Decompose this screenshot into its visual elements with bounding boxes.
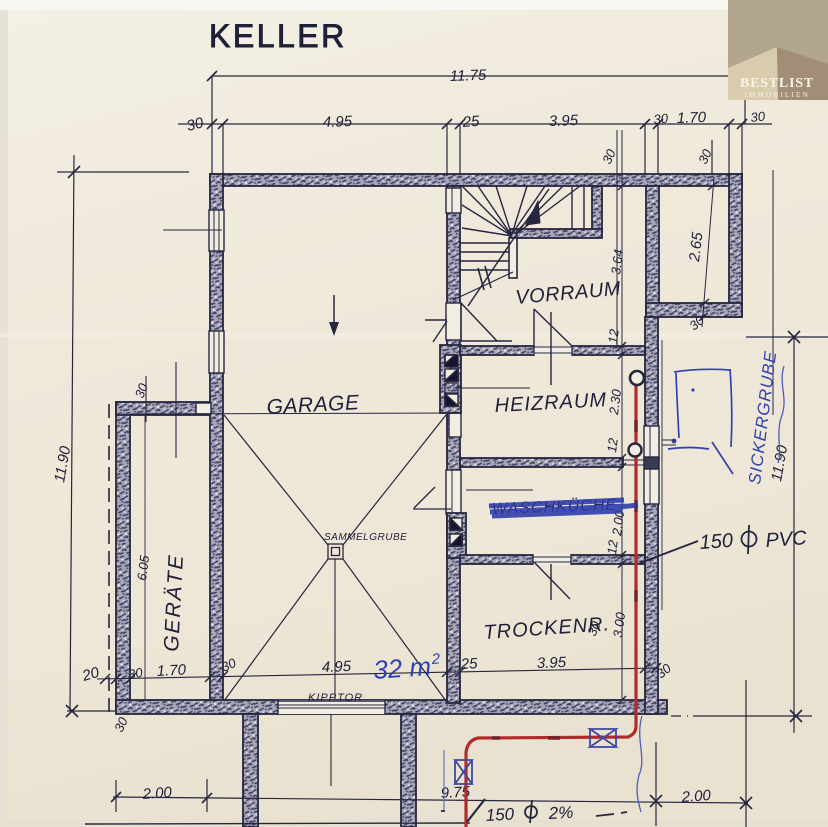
svg-text:32 m: 32 m [372,651,432,685]
svg-text:1.70: 1.70 [677,109,707,127]
svg-text:3.95: 3.95 [549,112,579,130]
svg-text:2: 2 [430,650,441,668]
svg-text:PVC: PVC [765,527,808,552]
svg-text:SAMMELGRUBE: SAMMELGRUBE [324,532,407,543]
svg-text:BESTLIST: BESTLIST [740,76,814,91]
svg-text:IMMOBILIEN: IMMOBILIEN [744,90,810,99]
svg-text:25: 25 [459,655,478,673]
svg-text:GARAGE: GARAGE [266,391,360,419]
svg-text:150: 150 [699,530,734,554]
svg-text:3.00: 3.00 [610,611,628,639]
svg-text:KELLER: KELLER [209,18,347,54]
svg-text:6.05: 6.05 [134,554,152,582]
svg-text:3.64: 3.64 [608,248,626,275]
svg-text:30: 30 [750,108,767,125]
svg-text:3.95: 3.95 [537,654,567,672]
svg-text:150: 150 [485,805,515,825]
svg-text:25: 25 [461,113,480,131]
svg-text:12: 12 [605,327,622,344]
svg-text:1.70: 1.70 [156,661,187,680]
svg-text:2%: 2% [547,803,574,823]
svg-text:12: 12 [604,538,621,555]
svg-text:2.00: 2.00 [141,784,173,803]
svg-text:30: 30 [653,110,670,127]
svg-text:11.75: 11.75 [450,67,488,85]
svg-text:4.95: 4.95 [323,113,353,131]
svg-text:2.00: 2.00 [680,787,712,806]
svg-text:12: 12 [604,436,621,453]
svg-text:4.95: 4.95 [322,658,352,676]
svg-text:KIPPTOR: KIPPTOR [308,692,363,704]
